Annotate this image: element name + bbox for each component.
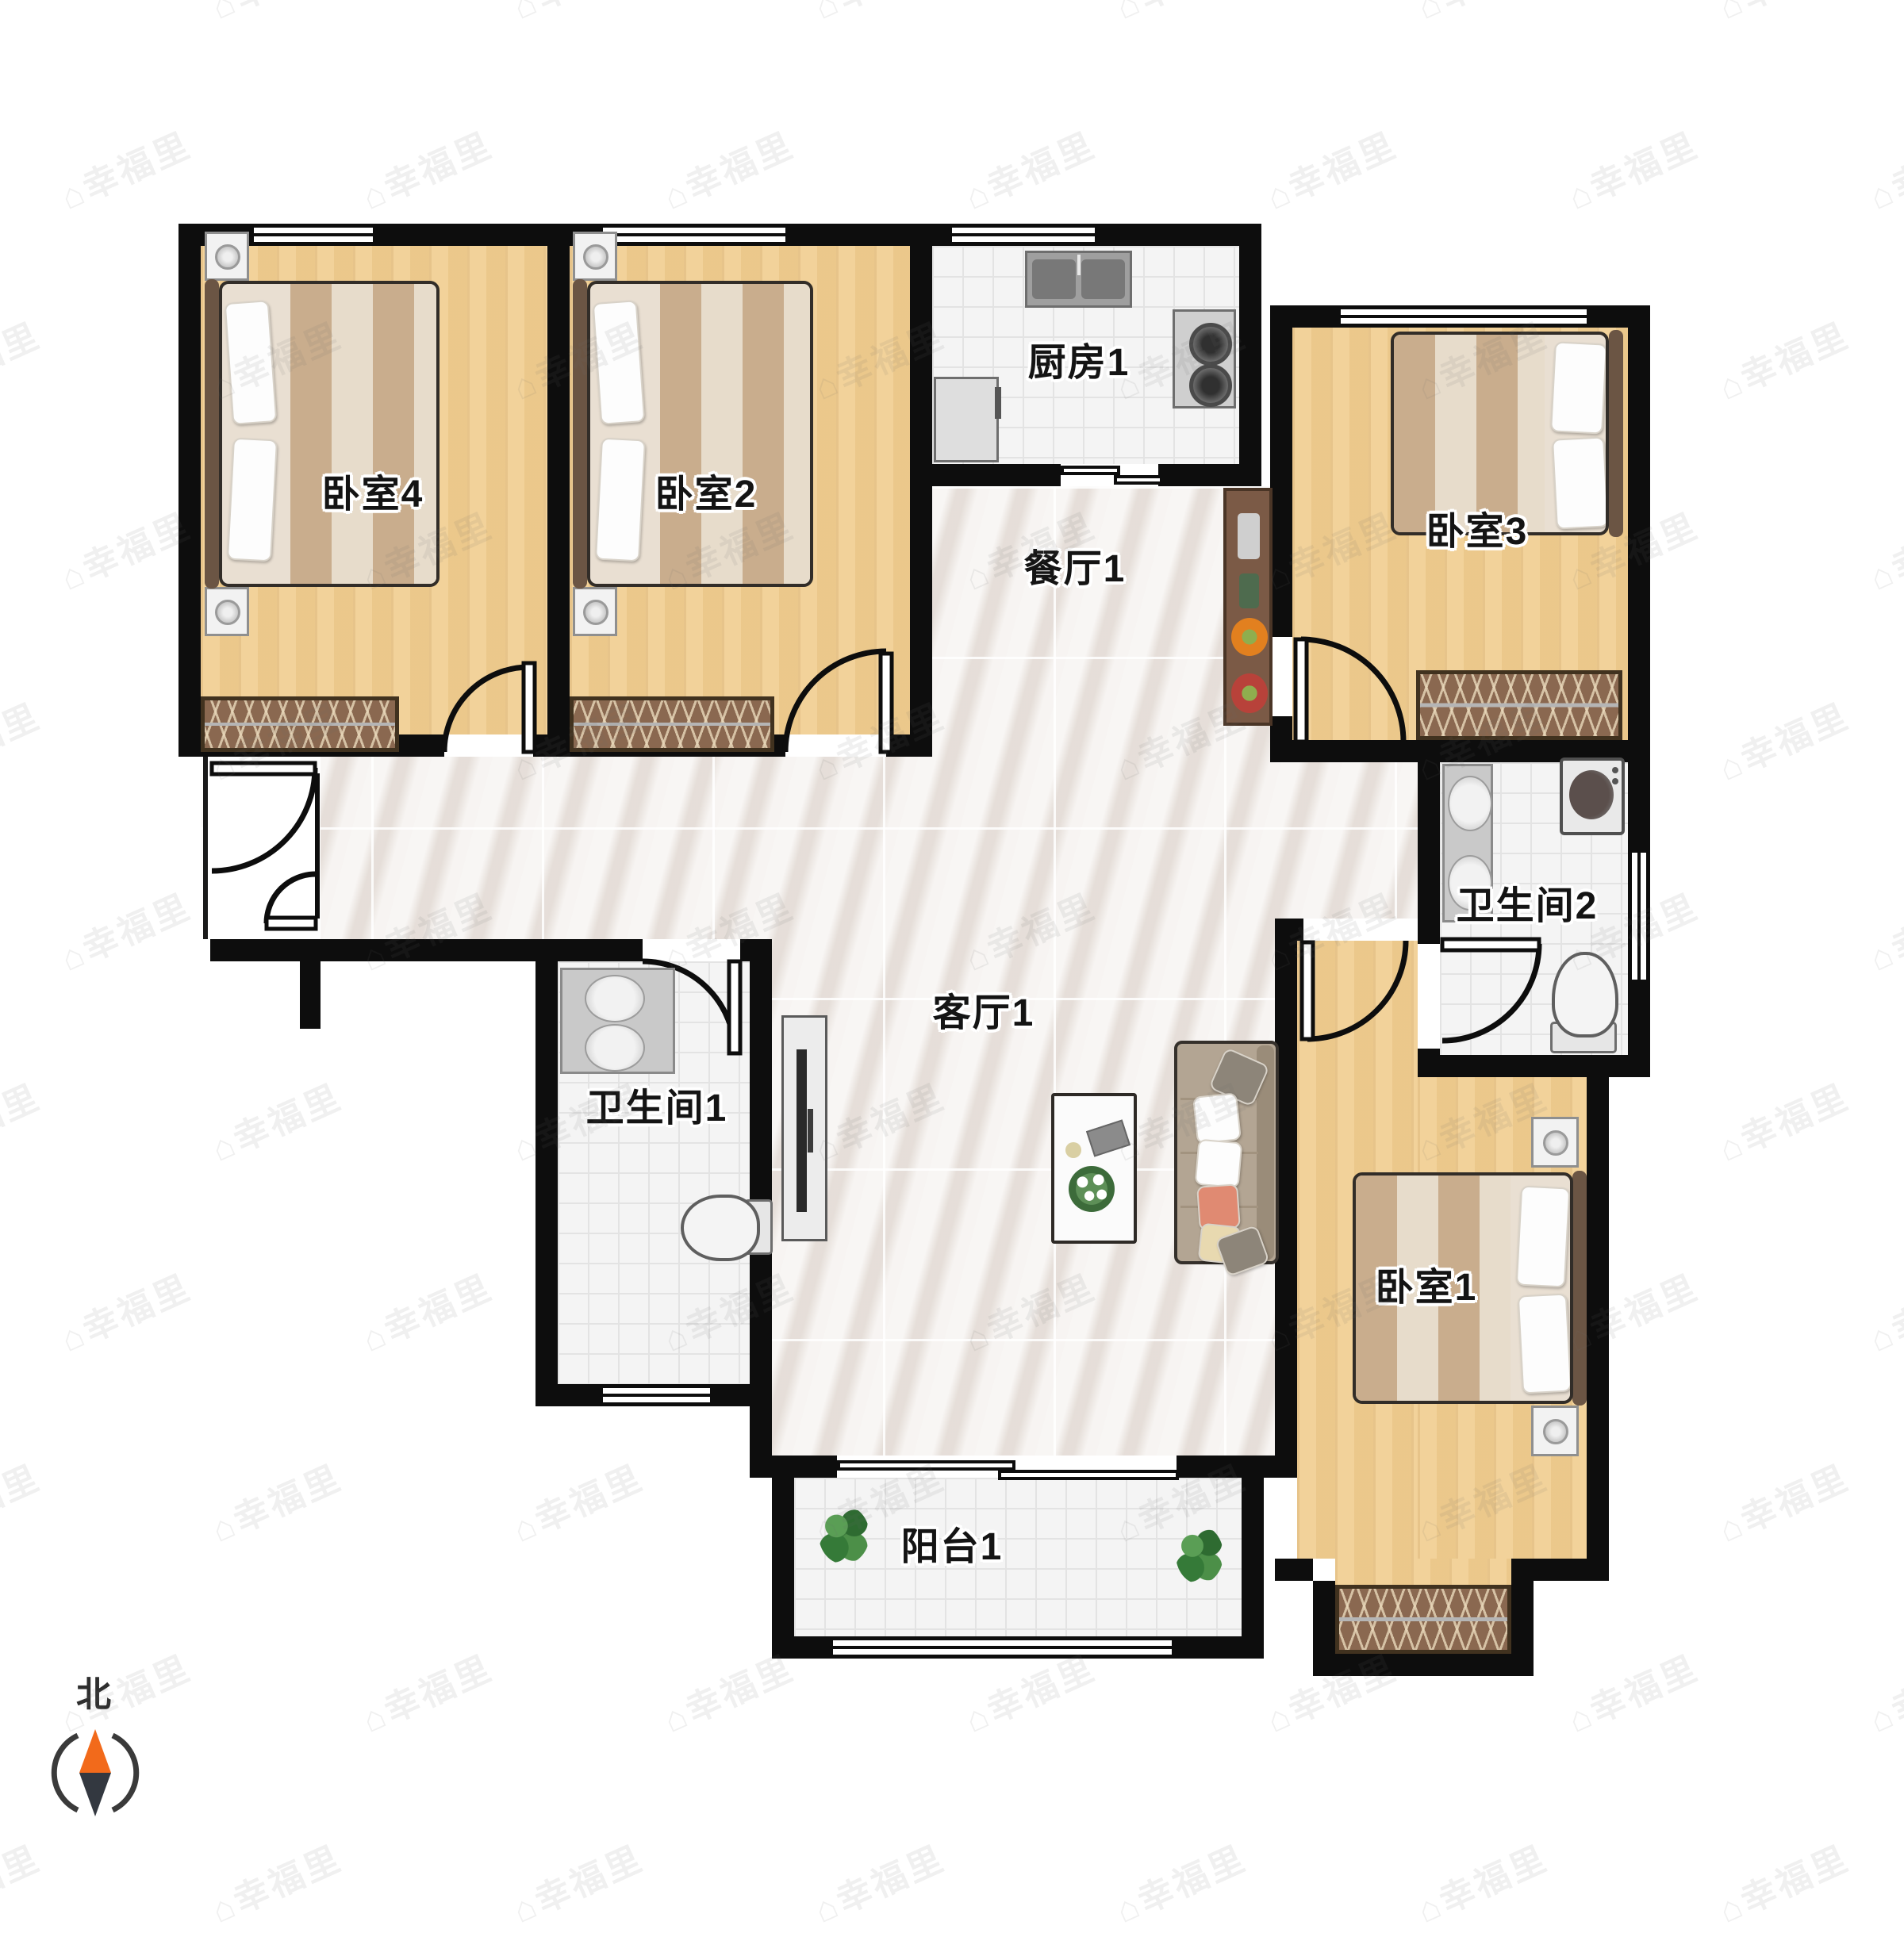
plate-orange-icon: [1231, 618, 1268, 656]
coffee-table: [1051, 1093, 1137, 1244]
bedroom3-wardrobe: [1416, 670, 1622, 740]
kitchen-label: 厨房1: [1028, 331, 1130, 386]
bedroom4-nightstand-top: [205, 232, 249, 281]
bedroom3-label: 卧室3: [1426, 500, 1529, 555]
balcony-plant-left: [819, 1505, 869, 1564]
bedroom2-door-arc: [785, 651, 886, 752]
bathroom1-label: 卫生间1: [586, 1076, 728, 1132]
bedroom2-nightstand-top: [573, 232, 617, 281]
bathroom1-vanity: [560, 968, 675, 1074]
wine-bottle-icon: [1238, 513, 1260, 559]
compass-north-label: 北: [76, 1666, 111, 1716]
bedroom3-pillow-1: [1550, 341, 1607, 434]
bedroom2-blanket: [660, 284, 813, 584]
bedroom1-pillow-1: [1516, 1185, 1571, 1287]
bathroom2-label: 卫生间2: [1457, 874, 1599, 930]
bedroom1-door-arc: [1307, 941, 1406, 1039]
bedroom3-bed-headboard: [1609, 330, 1623, 537]
bedroom1-label: 卧室1: [1376, 1256, 1478, 1311]
bedroom1-nightstand-top: [1531, 1117, 1579, 1168]
flowers-icon: [1069, 1166, 1115, 1212]
bedroom1-pillow-2: [1518, 1293, 1572, 1394]
bathroom2-door-arc: [1442, 944, 1539, 1041]
bathroom2-toilet: [1547, 952, 1618, 1053]
bedroom4-bed: [219, 281, 440, 587]
bedroom3-pillow-2: [1552, 436, 1609, 529]
bedroom4-door-leaf: [524, 663, 535, 752]
compass-icon: [46, 1723, 144, 1823]
bedroom2-bed: [587, 281, 813, 587]
sofa-pillow-white-2: [1195, 1139, 1243, 1189]
bedroom1-bed-headboard: [1572, 1171, 1587, 1406]
kitchen-stove: [1173, 309, 1236, 408]
washer-drum-icon: [1569, 770, 1614, 819]
bedroom2-pillow-1: [593, 300, 646, 425]
sofa: [1174, 1041, 1279, 1264]
tv-cabinet: [781, 1015, 827, 1241]
wine-bottle-green-icon: [1239, 573, 1259, 608]
floor-plan-canvas: 卧室4 卧室2 厨房1 卧室3 餐厅1 卫生间2 客厅1 卫生间1 卧室1 阳台…: [0, 0, 1904, 1904]
bedroom1-wardrobe: [1335, 1585, 1511, 1654]
bedroom1-door-leaf: [1302, 942, 1313, 1039]
bedroom1-nightstand-bottom: [1531, 1406, 1579, 1456]
kitchen-fridge: [934, 377, 999, 462]
compass-needle-north: [79, 1729, 111, 1773]
compass-needle-south: [79, 1773, 111, 1816]
bedroom2-door-leaf: [881, 654, 892, 752]
entry-door-leaf-2: [267, 918, 316, 929]
bedroom2-label: 卧室2: [655, 462, 758, 518]
bedroom4-pillow-2: [227, 438, 278, 562]
bedroom4-label: 卧室4: [322, 462, 424, 518]
bathroom1-door-leaf: [729, 961, 740, 1053]
tv-icon: [797, 1049, 807, 1212]
dining-wine-cabinet: [1223, 488, 1273, 726]
dining-label: 餐厅1: [1024, 537, 1127, 593]
living-label: 客厅1: [933, 981, 1035, 1037]
kitchen-sink: [1025, 251, 1132, 308]
bedroom2-wardrobe: [570, 696, 774, 752]
bedroom4-bed-headboard: [205, 279, 219, 589]
plate-red-icon: [1231, 673, 1268, 713]
entry-door-arc-1: [212, 768, 315, 871]
balcony-plant-right: [1176, 1525, 1223, 1584]
bedroom4-blanket: [290, 284, 440, 584]
sofa-pillow-white-1: [1192, 1092, 1242, 1145]
bedroom4-nightstand-bottom: [205, 587, 249, 636]
entry-door-leaf-1: [212, 763, 315, 774]
bedroom2-nightstand-bottom: [573, 587, 617, 636]
bedroom2-bed-headboard: [573, 279, 587, 589]
bedroom4-pillow-1: [225, 300, 278, 425]
bedroom3-door-arc: [1301, 639, 1403, 742]
bedroom3-door-leaf: [1296, 639, 1307, 742]
balcony-label: 阳台1: [901, 1515, 1004, 1571]
bathroom1-toilet: [681, 1195, 773, 1256]
bathroom2-washing-machine: [1560, 757, 1625, 835]
bedroom2-pillow-2: [595, 438, 646, 562]
bedroom4-door-arc: [444, 667, 529, 752]
book-icon: [1086, 1119, 1130, 1156]
bedroom4-wardrobe: [201, 696, 399, 752]
bathroom2-door-leaf: [1442, 939, 1539, 950]
